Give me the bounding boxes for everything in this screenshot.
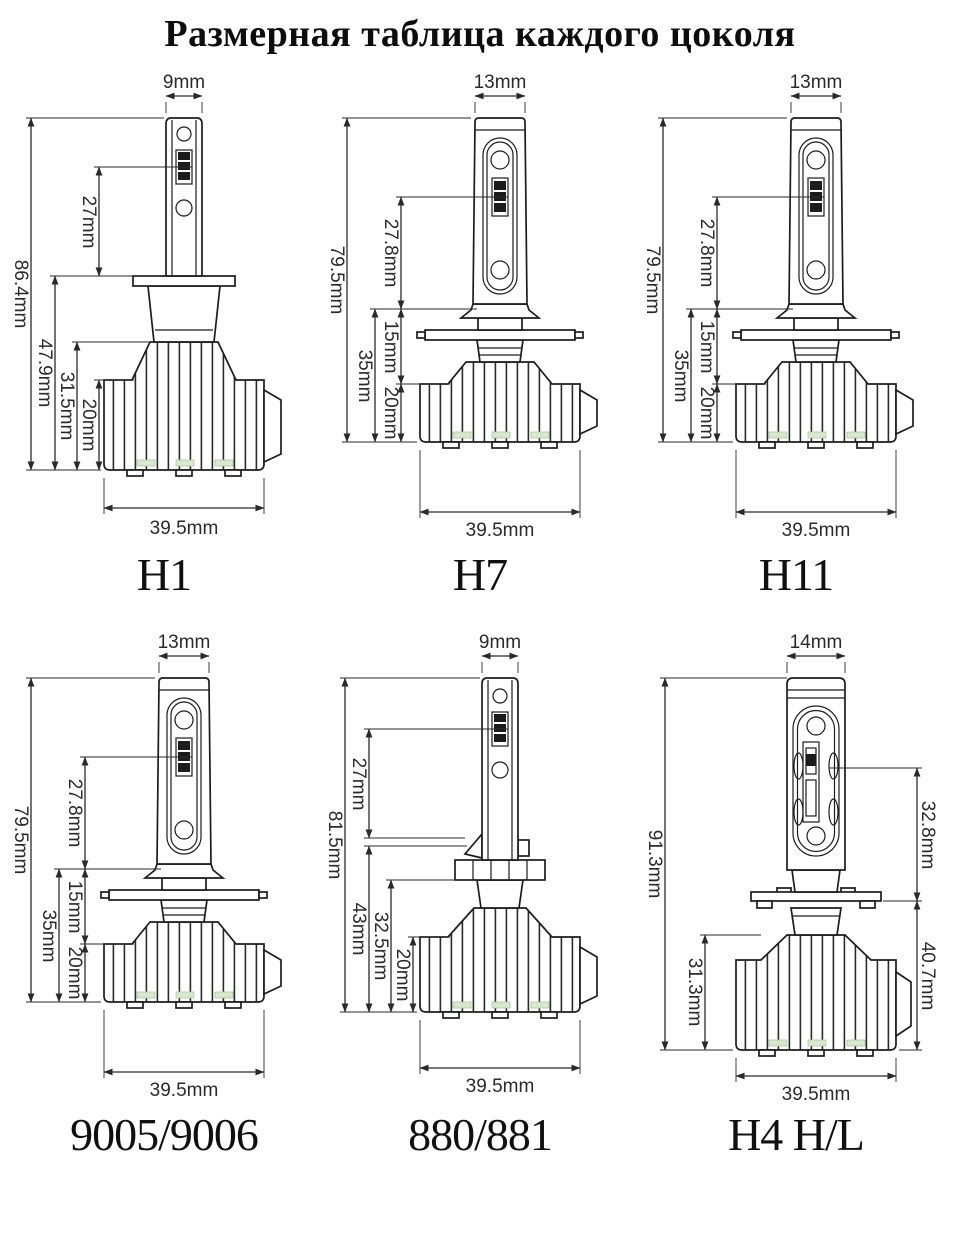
dim-top-width: 14mm <box>790 632 843 653</box>
dim-sink-height: 35mm <box>354 350 375 403</box>
bulb-label: H11 <box>640 552 952 598</box>
dim-total-height: 86.4mm <box>10 260 31 329</box>
page-title: Размерная таблица каждого цоколя <box>0 0 960 56</box>
bulb-cell-9005-9006: 13mm 79.5mm 35mm 15mm 20mm 27.8mm 39.5mm… <box>8 620 320 1158</box>
dim-neck-height: 15mm <box>64 881 85 934</box>
dim-base-width: 39.5mm <box>782 520 851 541</box>
dim-fin-height: 20mm <box>78 399 99 452</box>
h7-shapes <box>417 118 597 448</box>
dim-total-height: 81.5mm <box>324 811 345 880</box>
dim-base-width: 39.5mm <box>782 1084 851 1105</box>
9005-shapes <box>101 678 281 1008</box>
bulb-cell-h7: 13mm 79.5mm 35mm 15mm 20mm 27.8mm 39.5mm… <box>324 60 636 598</box>
dim-chip-height: 27.8mm <box>380 219 401 288</box>
h4-shapes <box>736 678 911 1056</box>
dim-fin-height: 20mm <box>696 387 717 440</box>
bulb-label: 9005/9006 <box>8 1112 320 1158</box>
dim-base-width: 39.5mm <box>150 518 219 539</box>
dim-top-width: 9mm <box>479 632 521 653</box>
h1-shapes <box>104 118 281 476</box>
dim-total-height: 91.3mm <box>644 830 665 899</box>
dim-chip-height: 32.8mm <box>917 801 938 870</box>
bulb-label: H4 H/L <box>640 1112 952 1158</box>
dim-neck-height: 15mm <box>380 321 401 374</box>
dim-sink-height: 32.5mm <box>370 912 391 981</box>
bulb-label: H1 <box>8 552 320 598</box>
dim-fin-height: 20mm <box>380 387 401 440</box>
dim-top-width: 13mm <box>158 632 211 653</box>
bulb-grid-bottom-row: 13mm 79.5mm 35mm 15mm 20mm 27.8mm 39.5mm… <box>0 616 960 1158</box>
dim-sink-height: 31.3mm <box>684 958 705 1027</box>
bulb-grid-top-row: 9mm 86.4mm 47.9mm 31.5mm 27mm 20mm 39.5m… <box>0 56 960 598</box>
dim-base-width: 39.5mm <box>466 520 535 541</box>
dim-top-width: 13mm <box>474 72 527 93</box>
h7-dimensions <box>342 96 580 518</box>
bulb-diagram-880-881: 9mm 81.5mm 27mm 43mm 32.5mm 20mm 39.5mm <box>324 620 636 1112</box>
bulb-label: 880/881 <box>324 1112 636 1158</box>
dim-chip-height: 27.8mm <box>64 779 85 848</box>
h11-dimensions <box>658 96 896 518</box>
dim-base-width: 39.5mm <box>466 1076 535 1097</box>
bulb-diagram-h11: 13mm 79.5mm 35mm 15mm 20mm 27.8mm 39.5mm <box>640 60 952 552</box>
bulb-cell-h11: 13mm 79.5mm 35mm 15mm 20mm 27.8mm 39.5mm… <box>640 60 952 598</box>
dim-lower-height: 47.9mm <box>34 339 55 408</box>
dim-total-height: 79.5mm <box>326 246 347 315</box>
dim-top-width: 9mm <box>163 72 205 93</box>
9005-dimensions <box>26 656 264 1078</box>
bulb-label: H7 <box>324 552 636 598</box>
bulb-diagram-h7: 13mm 79.5mm 35mm 15mm 20mm 27.8mm 39.5mm <box>324 60 636 552</box>
dim-base-width: 39.5mm <box>150 1080 219 1101</box>
dim-total-height: 79.5mm <box>642 246 663 315</box>
page: Размерная таблица каждого цоколя <box>0 0 960 1247</box>
dim-chip-height: 27.8mm <box>696 219 717 288</box>
dim-top-width: 13mm <box>790 72 843 93</box>
dim-lower-height: 40.7mm <box>917 942 938 1011</box>
dim-chip-height: 27mm <box>348 758 369 811</box>
bulb-cell-880-881: 9mm 81.5mm 27mm 43mm 32.5mm 20mm 39.5mm … <box>324 620 636 1158</box>
bulb-diagram-h1: 9mm 86.4mm 47.9mm 31.5mm 27mm 20mm 39.5m… <box>8 60 320 552</box>
dim-sink-height: 31.5mm <box>56 372 77 441</box>
dim-sink-height: 35mm <box>38 910 59 963</box>
dim-chip-height: 27mm <box>78 196 99 249</box>
dim-neck-height: 15mm <box>696 321 717 374</box>
h11-shapes <box>733 118 913 448</box>
dim-total-height: 79.5mm <box>10 806 31 875</box>
dim-fin-height: 20mm <box>392 949 413 1002</box>
bulb-diagram-h4: 14mm 91.3mm 31.3mm 32.8mm 40.7mm 39.5mm <box>640 620 952 1112</box>
bulb-diagram-9005-9006: 13mm 79.5mm 35mm 15mm 20mm 27.8mm 39.5mm <box>8 620 320 1112</box>
dim-fin-height: 20mm <box>64 947 85 1000</box>
dim-sink-height: 35mm <box>670 350 691 403</box>
bulb-cell-h1: 9mm 86.4mm 47.9mm 31.5mm 27mm 20mm 39.5m… <box>8 60 320 598</box>
dim-lower-height: 43mm <box>348 903 369 956</box>
bulb-cell-h4: 14mm 91.3mm 31.3mm 32.8mm 40.7mm 39.5mm … <box>640 620 952 1158</box>
